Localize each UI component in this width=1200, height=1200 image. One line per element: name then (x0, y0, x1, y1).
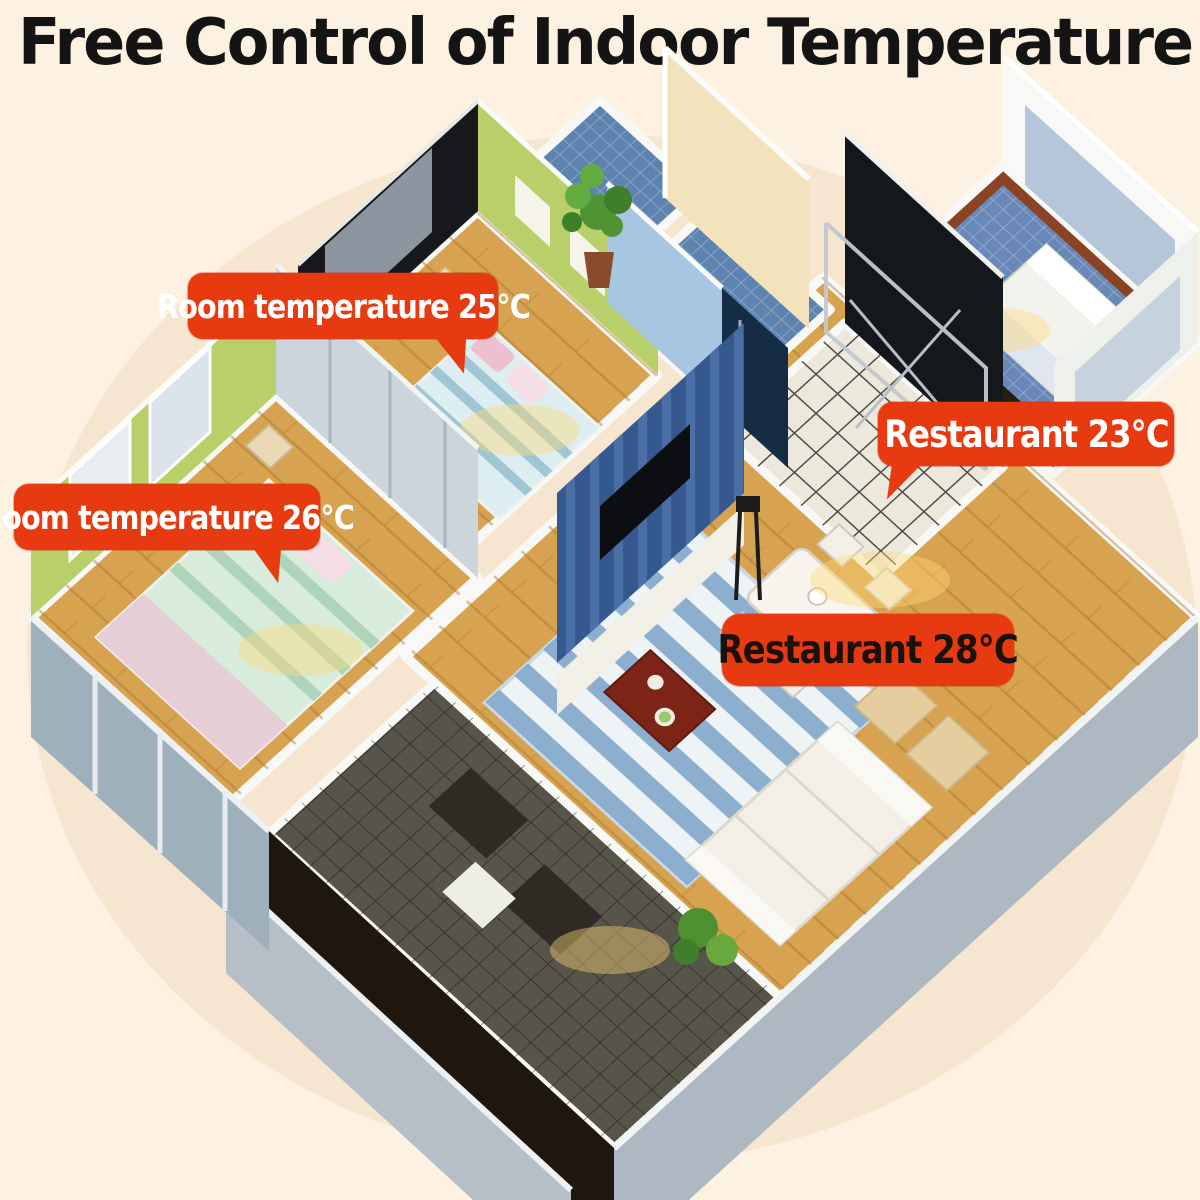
callout-room-temp-25-tail (432, 329, 473, 377)
page: { "title": { "text": "Free Control of In… (0, 0, 1200, 1200)
callout-room-temp-26: Room temperature 26°C (14, 484, 320, 550)
callout-restaurant-28: Restaurant 28°C (722, 614, 1014, 686)
apartment-3d-illustration (0, 0, 1200, 1200)
callout-room-temp-26-tail (250, 540, 286, 585)
callout-room-temp-25-label: Room temperature 25°C (156, 287, 529, 326)
callout-restaurant-28-label: Restaurant 28°C (718, 628, 1018, 673)
callout-restaurant-23: Restaurant 23°C (878, 402, 1174, 466)
callout-restaurant-23-tail (887, 454, 927, 504)
callout-restaurant-23-label: Restaurant 23°C (884, 413, 1168, 456)
apartment-scene: Room temperature 25°C Room temperature 2… (0, 0, 1200, 1200)
callout-room-temp-26-label: Room temperature 26°C (0, 498, 354, 537)
callout-room-temp-25: Room temperature 25°C (188, 273, 498, 339)
